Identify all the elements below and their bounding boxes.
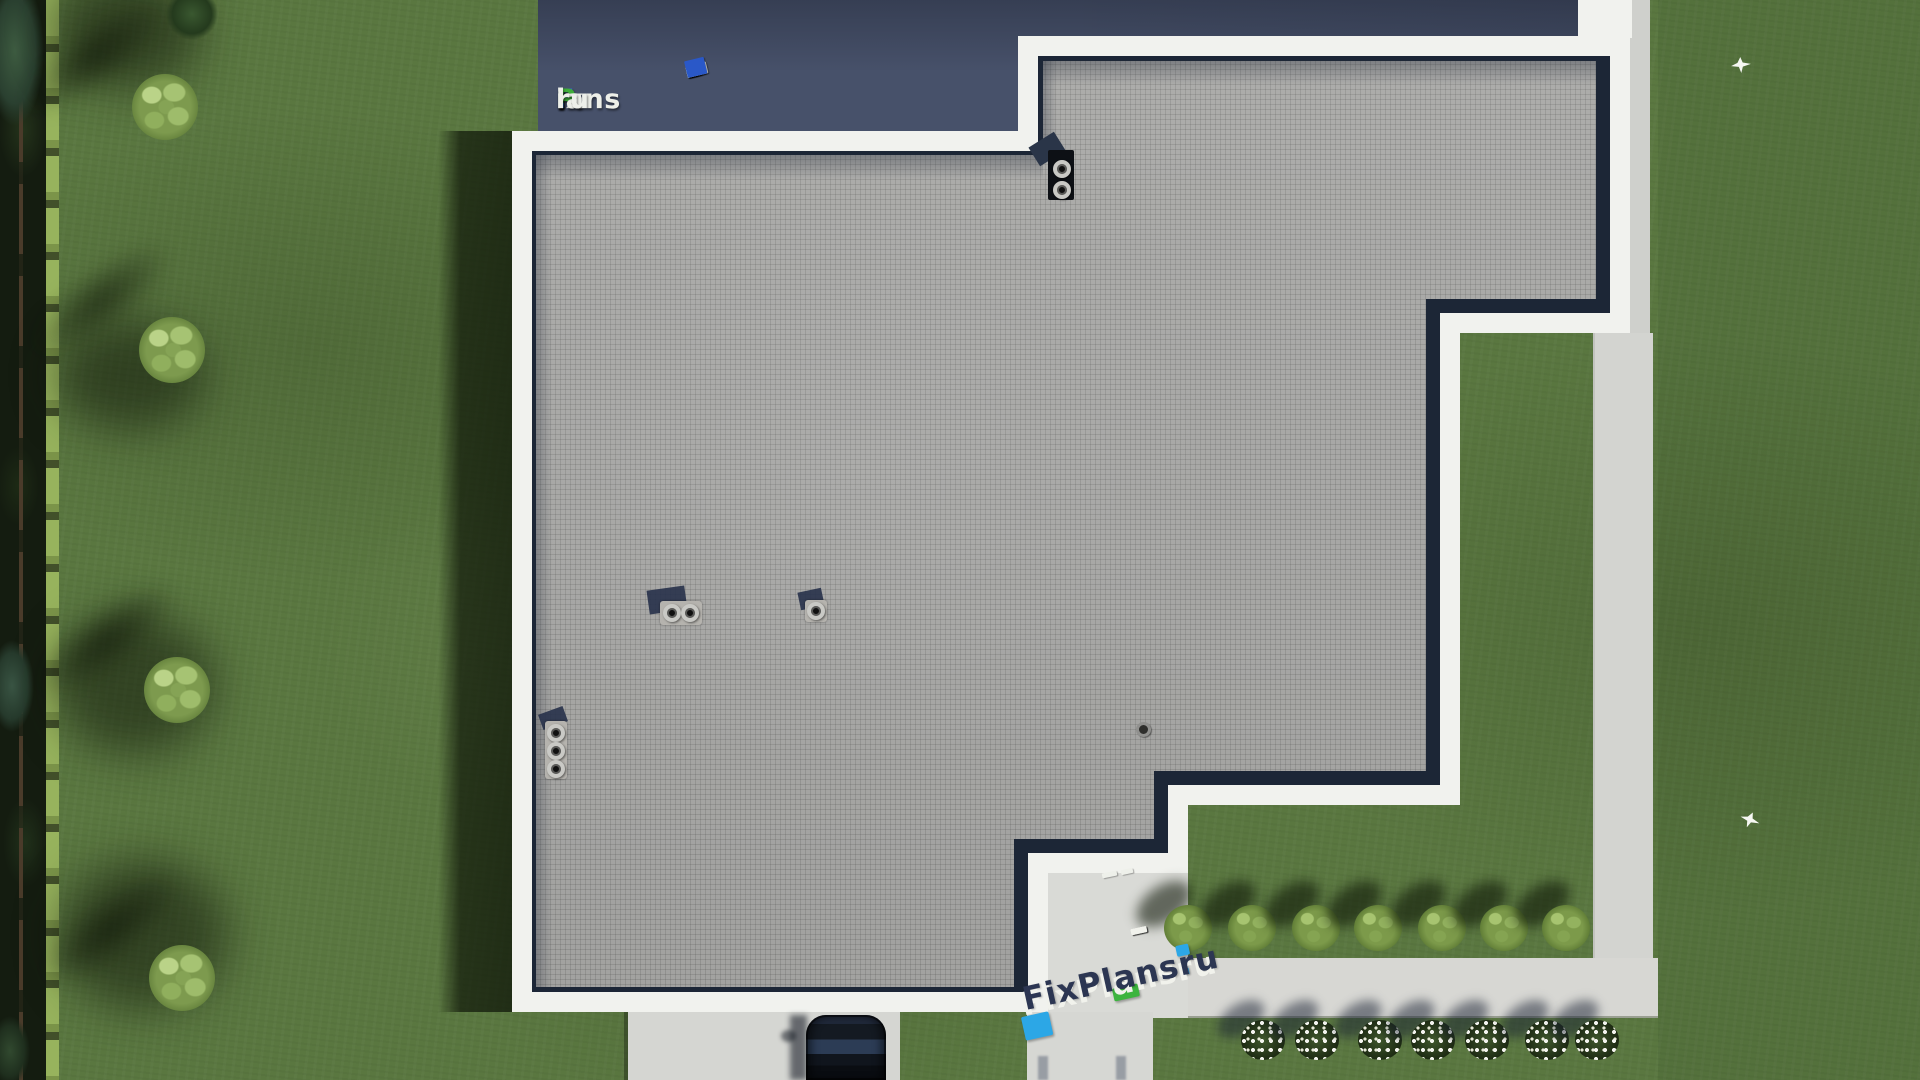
bird-icon bbox=[1738, 809, 1762, 830]
logo-letter: ru bbox=[556, 84, 590, 115]
watermark-faint-glyph bbox=[1116, 1056, 1126, 1080]
bird-icon bbox=[1730, 56, 1752, 75]
logo-dash bbox=[1130, 926, 1147, 935]
logo-suffix: ru bbox=[1174, 938, 1222, 984]
watermark-bottom-text: FixPlans.ru bbox=[1019, 946, 1183, 1018]
birds-layer bbox=[0, 0, 1920, 1080]
watermark-faint-glyph bbox=[1038, 1056, 1048, 1080]
aerial-scene: FixPlans.ru FixPlans.ru bbox=[0, 0, 1920, 1080]
